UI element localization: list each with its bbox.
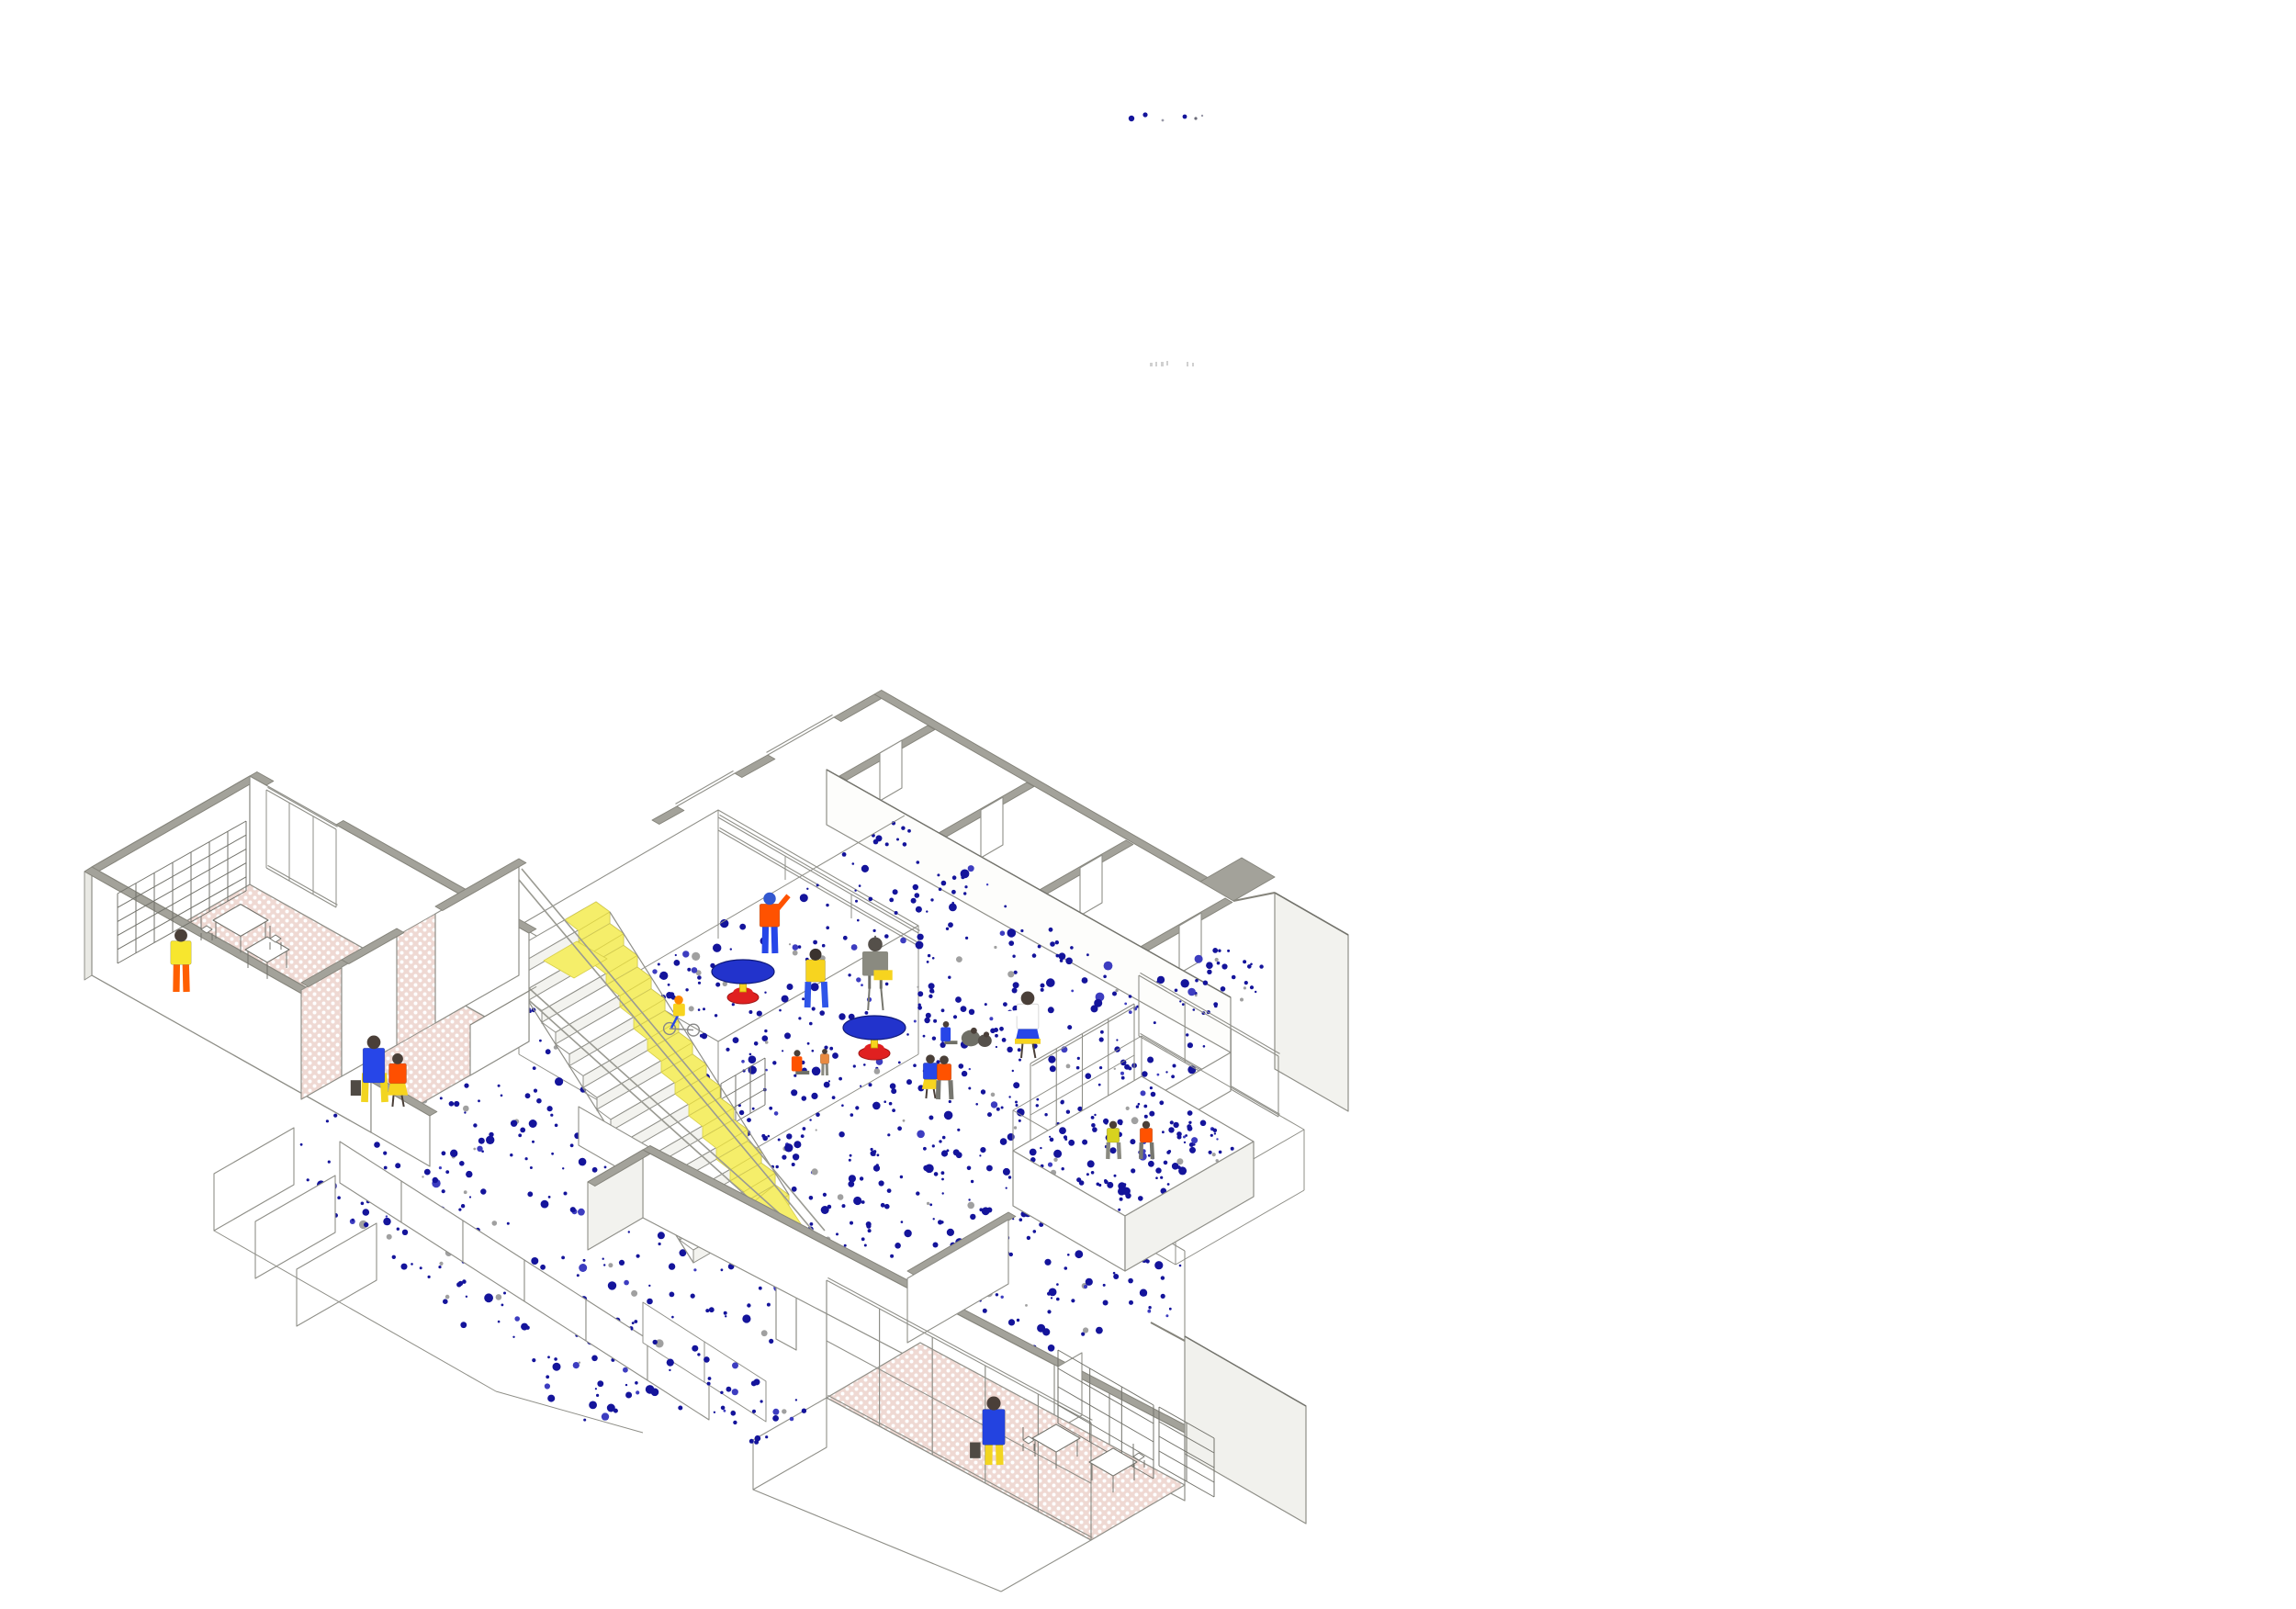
sitting-kid-blue bbox=[940, 1021, 957, 1044]
mushroom-stool bbox=[712, 960, 774, 1004]
stray-dot bbox=[1194, 117, 1197, 119]
terrace-riser bbox=[463, 1221, 524, 1301]
pointing-adult bbox=[999, 992, 1041, 1058]
axonometric-drawing-page bbox=[0, 0, 2296, 1609]
stray-dot bbox=[1162, 119, 1165, 122]
mushroom-stool bbox=[843, 1016, 906, 1060]
terrace-riser bbox=[524, 1260, 586, 1341]
terrace-riser bbox=[586, 1300, 647, 1380]
stilt-walker bbox=[862, 936, 893, 1010]
faint-mark bbox=[1161, 362, 1164, 366]
door-leaf bbox=[1080, 855, 1102, 916]
faint-mark bbox=[1166, 361, 1168, 366]
wall-cap bbox=[652, 806, 684, 825]
stray-dot bbox=[1129, 116, 1134, 121]
stray-dot bbox=[1201, 115, 1203, 117]
stray-confetti-dots bbox=[1129, 112, 1203, 121]
stray-dot bbox=[1142, 112, 1147, 117]
crouching-kids bbox=[962, 1028, 992, 1047]
wall-end bbox=[84, 867, 92, 980]
pink-tiled-wall bbox=[301, 967, 342, 1099]
east-room-block bbox=[1233, 893, 1348, 1111]
door-leaf bbox=[880, 740, 902, 801]
toddler bbox=[820, 1049, 829, 1075]
terrace-riser bbox=[340, 1142, 401, 1222]
faint-mark bbox=[1187, 362, 1188, 366]
sitting-kid-orange bbox=[792, 1050, 809, 1075]
axonometric-floor-plan bbox=[0, 0, 2296, 1609]
wall-cap bbox=[735, 755, 775, 778]
faint-scale-marks bbox=[1150, 361, 1194, 366]
gable-wall bbox=[1275, 893, 1348, 1111]
faint-mark bbox=[1150, 363, 1153, 366]
skirt bbox=[388, 1082, 408, 1096]
classroom-band bbox=[652, 691, 1275, 974]
hall-waving-adult bbox=[760, 893, 788, 953]
door-leaf bbox=[1179, 913, 1201, 973]
faint-mark bbox=[1155, 362, 1157, 366]
faint-mark bbox=[1192, 363, 1194, 366]
terrace-riser bbox=[401, 1181, 463, 1262]
wall-cap bbox=[834, 694, 882, 722]
skirt-stripe bbox=[1015, 1039, 1041, 1044]
door-leaf bbox=[981, 797, 1003, 858]
stray-dot bbox=[1183, 115, 1187, 119]
door-leaf bbox=[1058, 1353, 1082, 1429]
wing-gable bbox=[1185, 1336, 1306, 1524]
